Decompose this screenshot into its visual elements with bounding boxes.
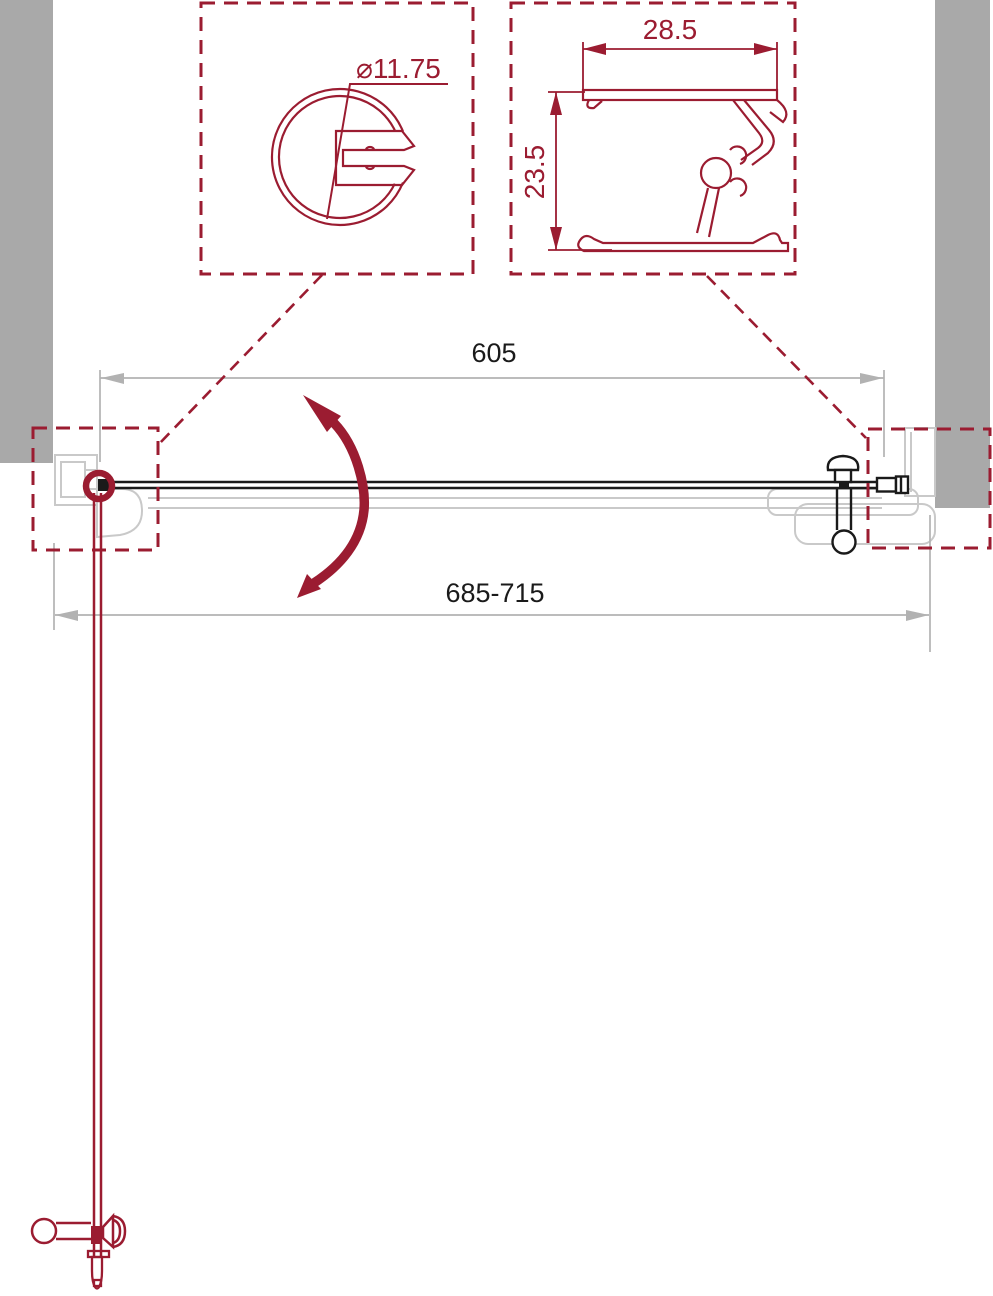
dim-28-5-label: 28.5 (643, 14, 698, 45)
door-panel-open (94, 493, 101, 1258)
callout-leader-1 (158, 275, 322, 445)
knob-handle-open (32, 1216, 125, 1247)
dim-diameter-label: ⌀11.75 (356, 53, 441, 84)
wall-left (0, 0, 53, 463)
wall-profile-detail (548, 42, 788, 251)
wall-right (935, 0, 990, 508)
hinge-profile-detail (272, 84, 448, 225)
dim-605-label: 605 (471, 338, 516, 368)
ghost-door-lines (148, 498, 882, 508)
callout-leader-2 (707, 276, 866, 438)
hinge (86, 473, 112, 499)
door-open-bottom-tip (88, 1251, 109, 1289)
technical-drawing: 605 685-715 (0, 0, 993, 1296)
swing-arc (297, 395, 364, 598)
door-panel-closed (110, 477, 908, 494)
dim-23-5-label: 23.5 (519, 145, 550, 200)
dim-685-715-label: 685-715 (445, 578, 544, 608)
